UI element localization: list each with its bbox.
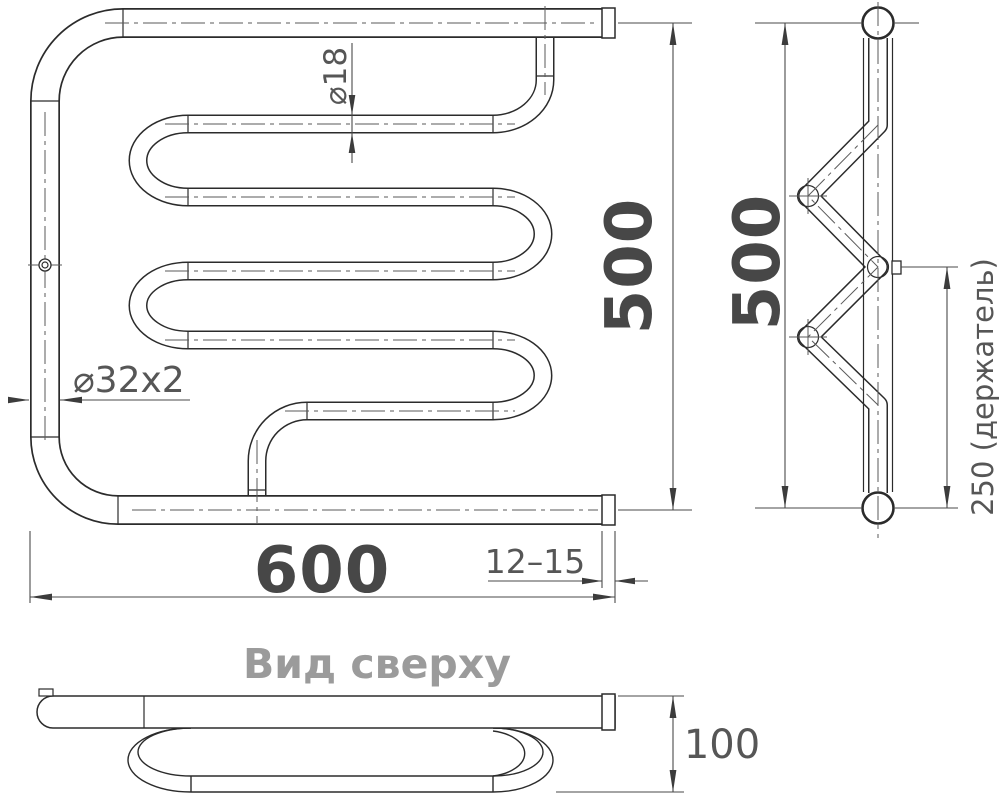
front-height-dimension-label: 500 [593,198,667,335]
holder-point-outer [39,259,51,271]
top-view-title: Вид сверху [243,640,511,688]
drawing-canvas: 500 600 12–15 ⌀18 ⌀32x2 500 250 (держате… [0,0,1000,795]
top-view [37,689,615,792]
bottom-wall-bracket [602,495,615,525]
side-view [789,2,901,538]
front-width-dimension-label: 600 [254,534,391,608]
top-view-depth-dimension-label: 100 [684,722,760,768]
wall-gap-dimension-label: 12–15 [485,542,585,581]
top-main-pipe [37,696,615,728]
coil-tube-diameter-label: ⌀18 [318,47,354,105]
top-view-wall-bracket [602,694,615,730]
side-height-dimension-label: 500 [721,194,795,331]
air-vent-plug [39,689,53,696]
top-wall-bracket [602,8,615,38]
top-coil-arcs [128,728,553,792]
holder-dimension-label: 250 (держатель) [966,258,1000,516]
wall-holder-block [892,261,901,274]
main-pipe-diameter-label: ⌀32x2 [73,360,185,401]
towel-rail-drawing: 500 600 12–15 ⌀18 ⌀32x2 500 250 (держате… [0,0,1000,795]
